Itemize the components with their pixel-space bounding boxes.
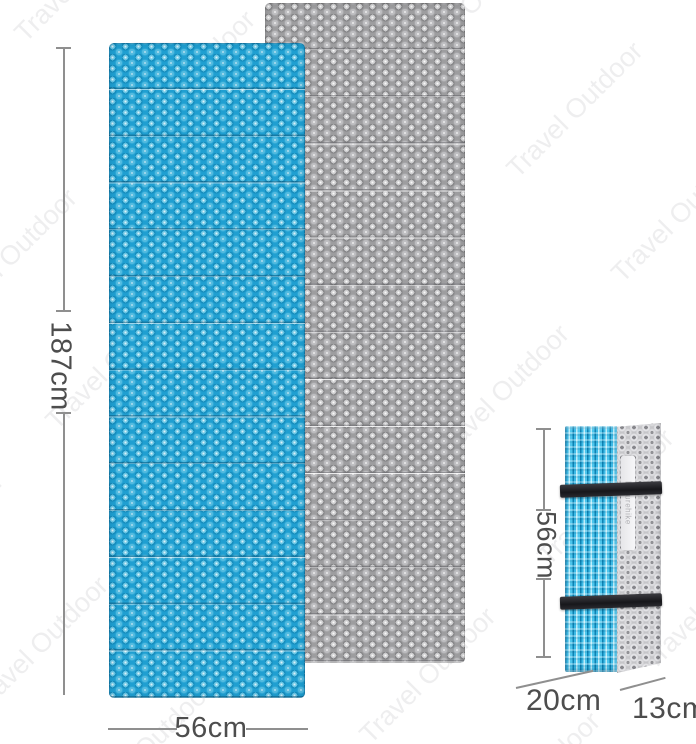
dim-width-line-left <box>108 728 177 730</box>
dim-length-line-lower <box>63 414 65 695</box>
dim-folded-height-line-upper <box>543 430 545 509</box>
product-photo: Travel OutdoorTravel OutdoorTravel Outdo… <box>0 0 696 744</box>
dim-label-length: 187cm <box>46 321 75 411</box>
dim-folded-height-tick-bottom <box>536 656 551 658</box>
dim-label-folded-depth: 13cm <box>632 694 696 724</box>
folded-brand-strip: Naturehike <box>621 456 635 550</box>
dim-folded-height-line-lower <box>543 580 545 656</box>
dim-label-folded-height: 56cm <box>533 511 560 579</box>
folded-mat-front-face <box>565 426 617 672</box>
dim-label-folded-width: 20cm <box>526 686 601 716</box>
dim-label-width: 56cm <box>175 714 248 743</box>
dim-folded-depth-line <box>620 677 666 691</box>
unfolded-mat-blue <box>109 43 305 698</box>
dim-length-tick-mid-upper <box>56 310 71 312</box>
dim-width-line-right <box>246 728 308 730</box>
fold-lines-blue <box>109 43 305 698</box>
dim-length-line-upper <box>63 49 65 310</box>
